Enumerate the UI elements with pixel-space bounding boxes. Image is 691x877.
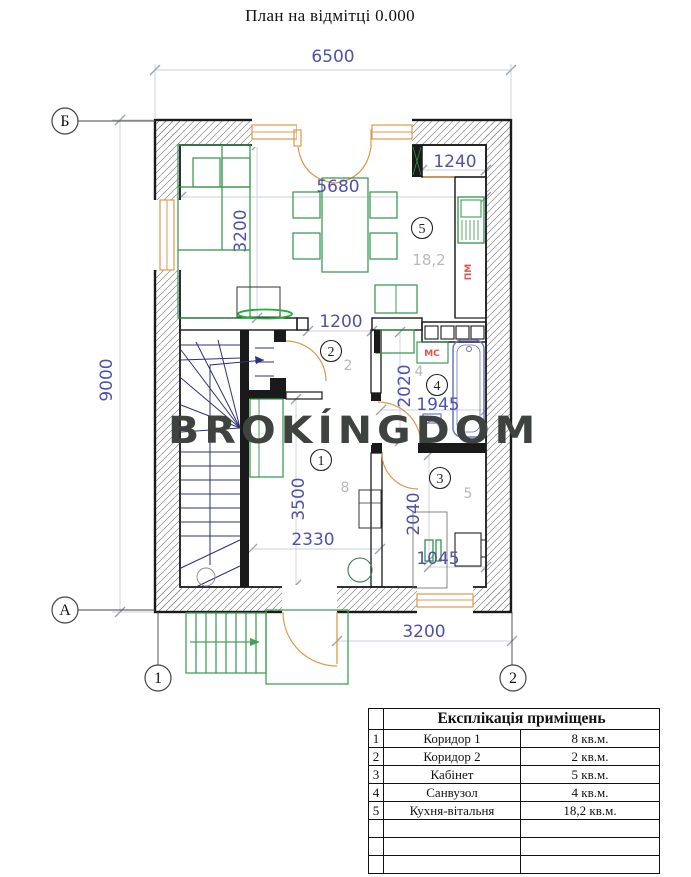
room-name-cell: Кухня-вітальня — [384, 802, 521, 820]
room-area-cell: 18,2 кв.м. — [521, 802, 660, 820]
room-name-cell — [384, 820, 521, 838]
room-area-cell — [521, 838, 660, 856]
dim-overall-height: 9000 — [97, 358, 117, 401]
washer-label: МС — [424, 349, 440, 359]
dim-office-height: 2040 — [404, 492, 424, 535]
room-name-cell: Коридор 2 — [384, 748, 521, 766]
legend-row: 5 Кухня-вітальня 18,2 кв.м. — [369, 802, 660, 820]
washer-panel — [374, 330, 380, 353]
dim-entry-offset: 3200 — [402, 622, 445, 642]
door-swing-arc — [382, 453, 418, 489]
room-name-cell — [384, 838, 521, 856]
dim-overall-width: 6500 — [311, 47, 354, 67]
axis-label-1: 1 — [154, 670, 162, 687]
room-name-cell: Санвузол — [384, 784, 521, 802]
room3-number: 3 — [437, 472, 444, 487]
dim-hall-height: 3500 — [289, 477, 309, 520]
room-number-cell: 1 — [369, 730, 384, 748]
porch — [186, 610, 348, 684]
room-area-cell: 2 кв.м. — [521, 748, 660, 766]
room4-area: 4 — [415, 364, 424, 380]
column-symbol — [197, 568, 215, 586]
door-swing-arc — [286, 341, 326, 381]
room5-area: 18,2 — [412, 251, 445, 269]
dim-bath-height: 2020 — [395, 364, 415, 407]
legend-num-header — [369, 709, 384, 730]
dishwasher-label: ПМ — [464, 264, 474, 281]
legend-row: 1 Коридор 1 8 кв.м. — [369, 730, 660, 748]
legend-header-row: Експлікація приміщень — [369, 709, 660, 730]
room-area-cell: 4 кв.м. — [521, 784, 660, 802]
legend-table: Експлікація приміщень 1 Коридор 1 8 кв.м… — [368, 708, 660, 874]
legend-row — [369, 820, 660, 838]
french-door-opening — [297, 118, 372, 147]
room-name-cell — [384, 856, 521, 874]
dim-hall-width: 2330 — [291, 530, 334, 550]
room-number-cell: 2 — [369, 748, 384, 766]
room2-number: 2 — [328, 345, 335, 360]
kitchen-counter — [455, 177, 486, 318]
axis-label-a: А — [59, 602, 71, 619]
internal-partitions — [180, 145, 486, 587]
room-area-cell — [521, 856, 660, 874]
room-name-cell: Кабінет — [384, 766, 521, 784]
room-number-cell: 5 — [369, 802, 384, 820]
room-name-cell: Коридор 1 — [384, 730, 521, 748]
dim-kitchen-width: 5680 — [316, 177, 359, 197]
room4-number: 4 — [434, 379, 441, 394]
cabinet — [359, 490, 381, 528]
legend-row: 3 Кабінет 5 кв.м. — [369, 766, 660, 784]
watermark: BROKÍNGDOM — [168, 408, 538, 452]
door-swing-arc — [283, 612, 337, 666]
legend-title: Експлікація приміщень — [384, 709, 660, 730]
legend-row — [369, 838, 660, 856]
legend-row — [369, 856, 660, 874]
room-number-cell: 4 — [369, 784, 384, 802]
legend-row: 4 Санвузол 4 кв.м. — [369, 784, 660, 802]
room-area-cell — [521, 820, 660, 838]
washing-machine — [376, 330, 414, 353]
room2-area: 2 — [344, 358, 353, 374]
floor-plan-drawing: Б А 1 2 5 18,2 2 2 4 4 1 8 3 — [0, 0, 691, 700]
floor-plan-page: План на відмітці 0.000 — [0, 0, 691, 877]
staircase — [181, 340, 274, 587]
dim-kitchen-depth: 3200 — [231, 209, 251, 252]
room-number-cell — [369, 820, 384, 838]
pouf — [348, 558, 372, 582]
room5-number: 5 — [419, 222, 426, 237]
tv-stand — [237, 287, 280, 317]
room1-area: 8 — [341, 480, 350, 496]
axis-label-b: Б — [60, 113, 69, 130]
dim-office-window: 1045 — [416, 549, 459, 569]
legend-row: 2 Коридор 2 2 кв.м. — [369, 748, 660, 766]
room-number-cell — [369, 856, 384, 874]
room-area-cell: 8 кв.м. — [521, 730, 660, 748]
room3-area: 5 — [464, 486, 473, 502]
dim-kitchen-door: 1200 — [319, 312, 362, 332]
room-number-cell — [369, 838, 384, 856]
axis-label-2: 2 — [509, 670, 517, 687]
room1-number: 1 — [318, 454, 325, 469]
room-number-cell: 3 — [369, 766, 384, 784]
room-area-cell: 5 кв.м. — [521, 766, 660, 784]
dim-pantry-width: 1240 — [433, 152, 476, 172]
